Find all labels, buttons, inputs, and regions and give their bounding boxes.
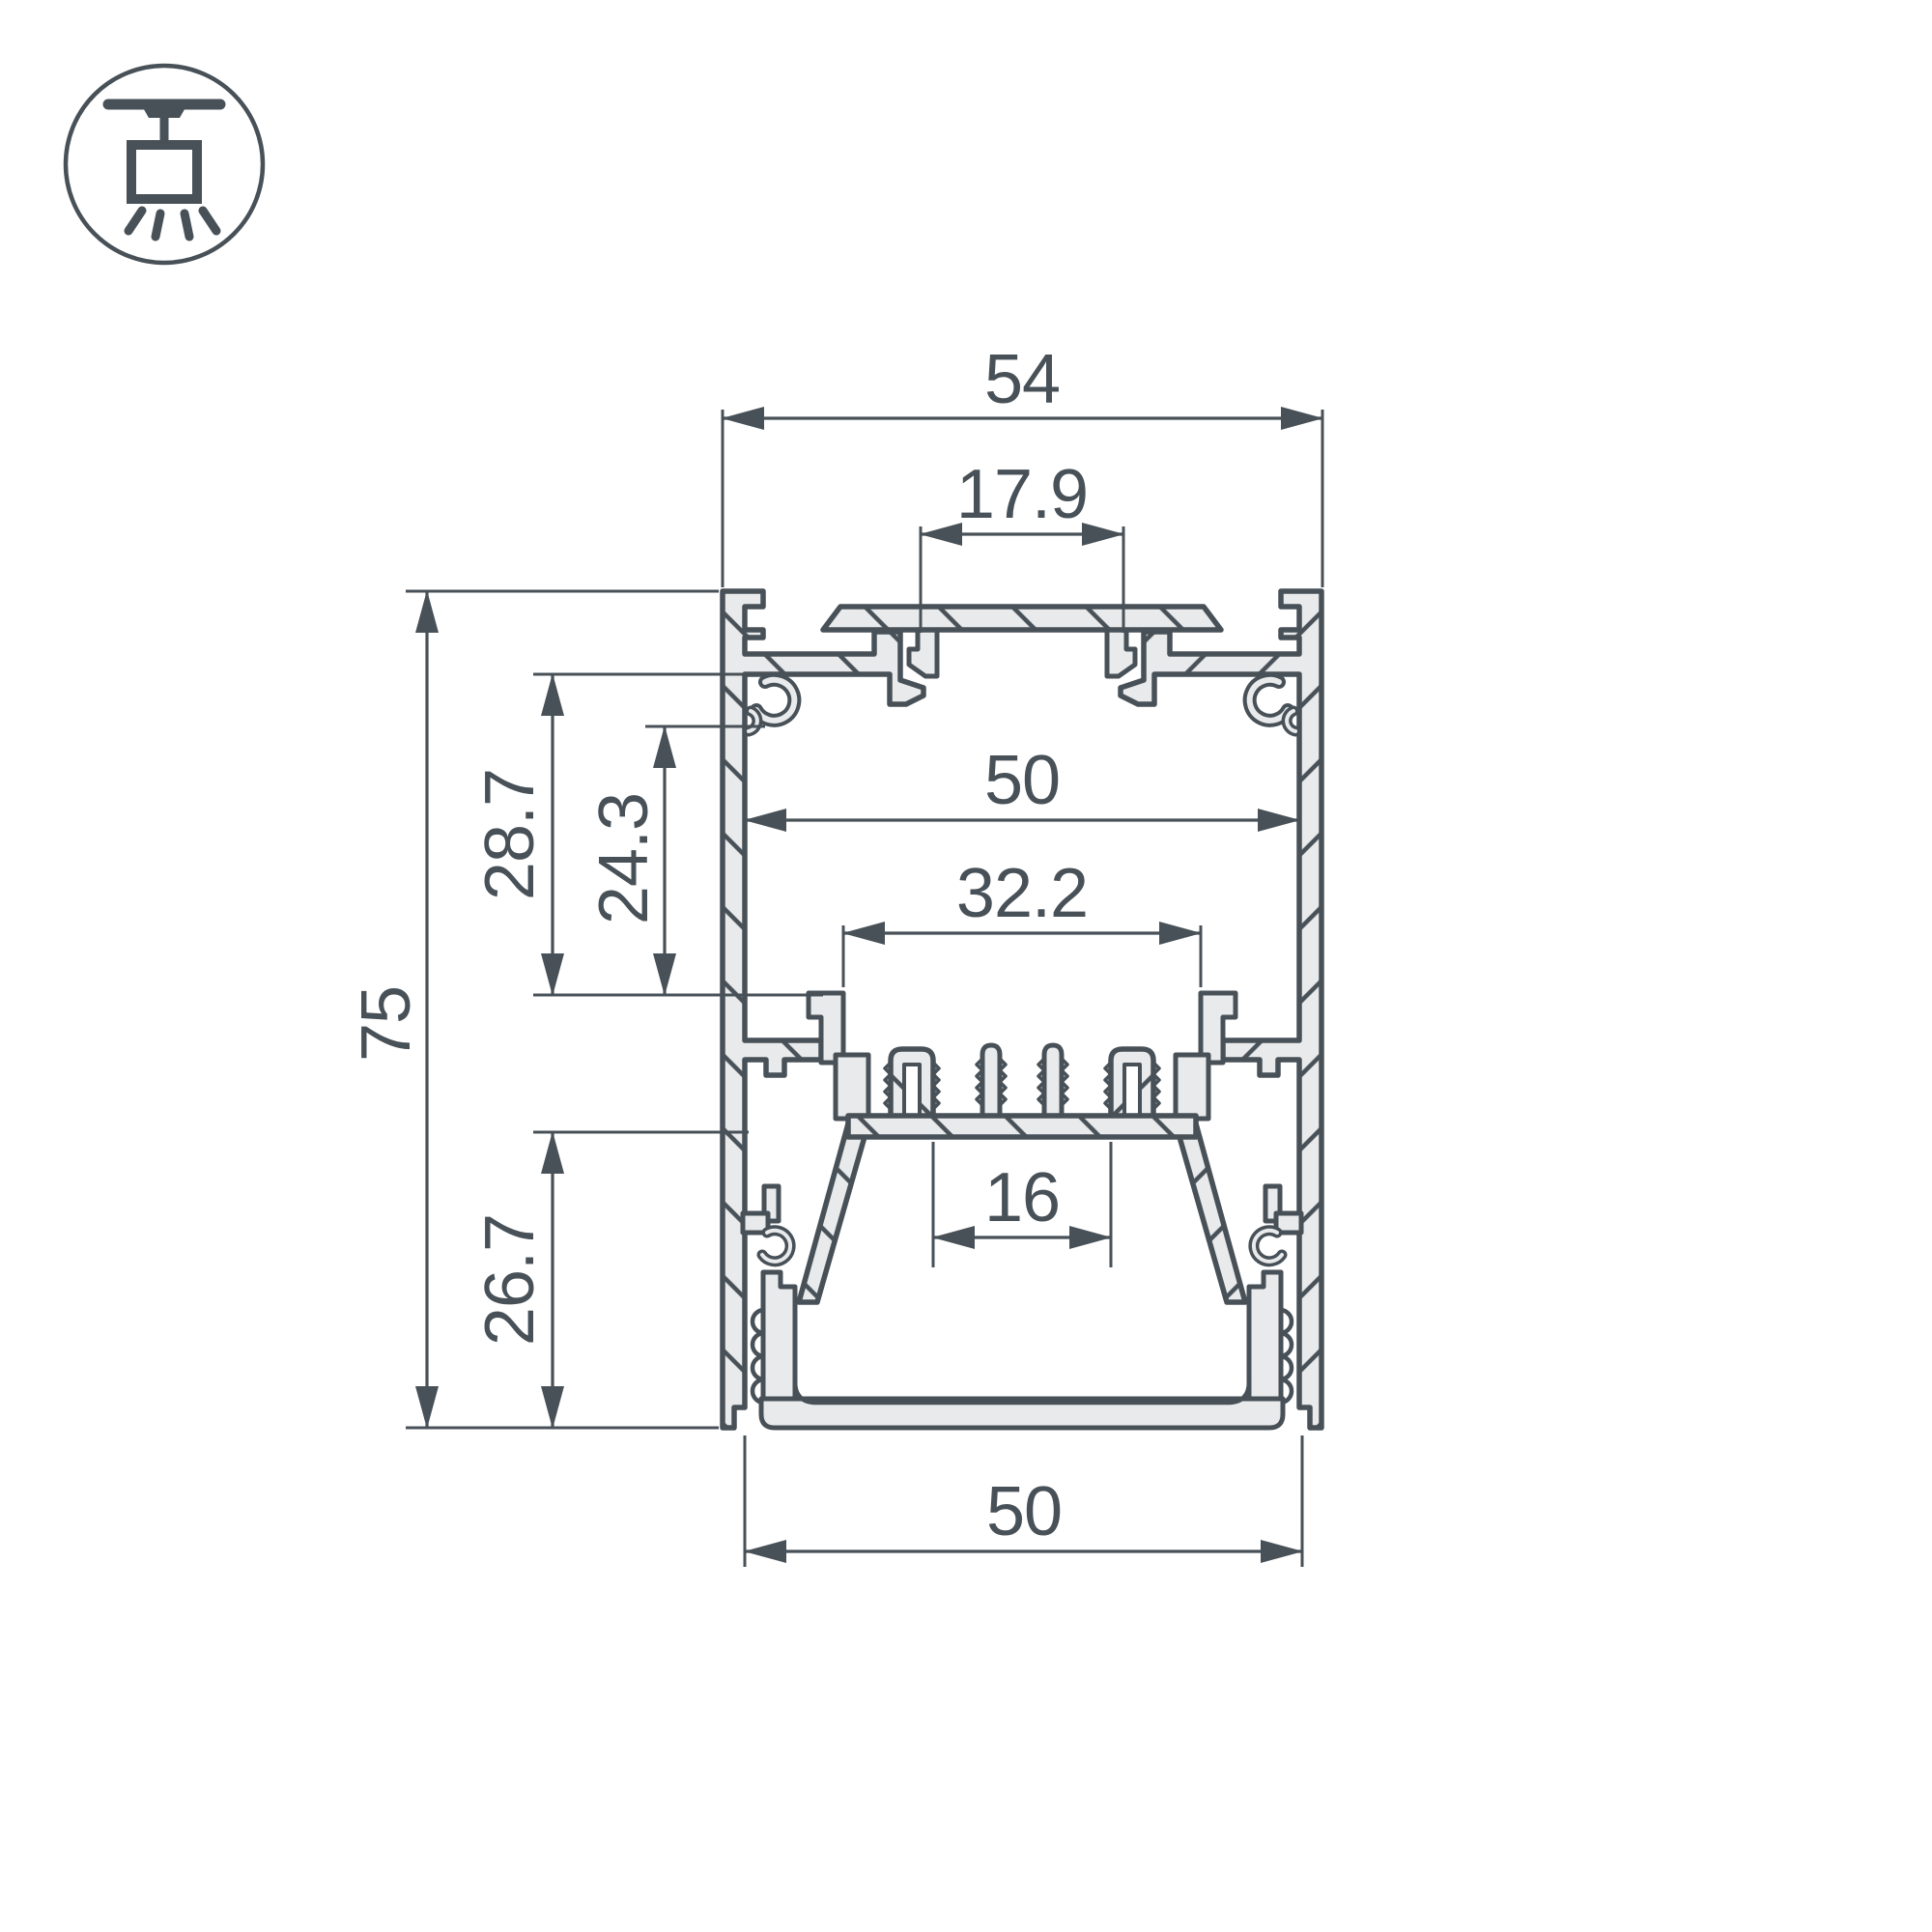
dim-led-shelf-width-label: 16 <box>984 1159 1060 1236</box>
dim-led-shelf-width: 16 <box>933 1142 1111 1267</box>
profile-cross-section <box>723 591 1321 1428</box>
dim-lower-depth-label: 26.7 <box>471 1214 549 1346</box>
icon-lamp-body <box>131 145 197 199</box>
dim-inner-width-label: 50 <box>984 742 1060 819</box>
led-carrier-plate <box>848 1116 1196 1137</box>
dim-bottom-width-label: 50 <box>986 1473 1062 1550</box>
profile-right-half <box>1038 591 1321 1428</box>
dim-carrier-width-label: 32.2 <box>956 855 1088 932</box>
dim-upper-depth-label: 28.7 <box>471 769 549 900</box>
dim-inner-width: 50 <box>745 742 1299 820</box>
icon-light-rays <box>128 211 216 237</box>
dim-lower-depth: 26.7 <box>471 1132 749 1428</box>
dim-top-slot-width-label: 17.9 <box>956 456 1088 533</box>
profile-left-half <box>723 591 1006 1428</box>
ceiling-light-icon <box>66 66 263 263</box>
dim-carrier-width: 32.2 <box>843 855 1201 987</box>
icon-circle <box>66 66 263 263</box>
top-cover-strip <box>823 607 1221 630</box>
dimensions: 54 17.9 50 32.2 16 50 <box>348 341 1322 1567</box>
profile-dimension-drawing: 54 17.9 50 32.2 16 50 <box>0 0 1932 1932</box>
dim-overall-width-label: 54 <box>984 341 1060 418</box>
dim-boss-depth-label: 24.3 <box>585 793 663 924</box>
dim-bottom-width: 50 <box>745 1435 1302 1567</box>
dim-overall-height-label: 75 <box>348 986 425 1062</box>
